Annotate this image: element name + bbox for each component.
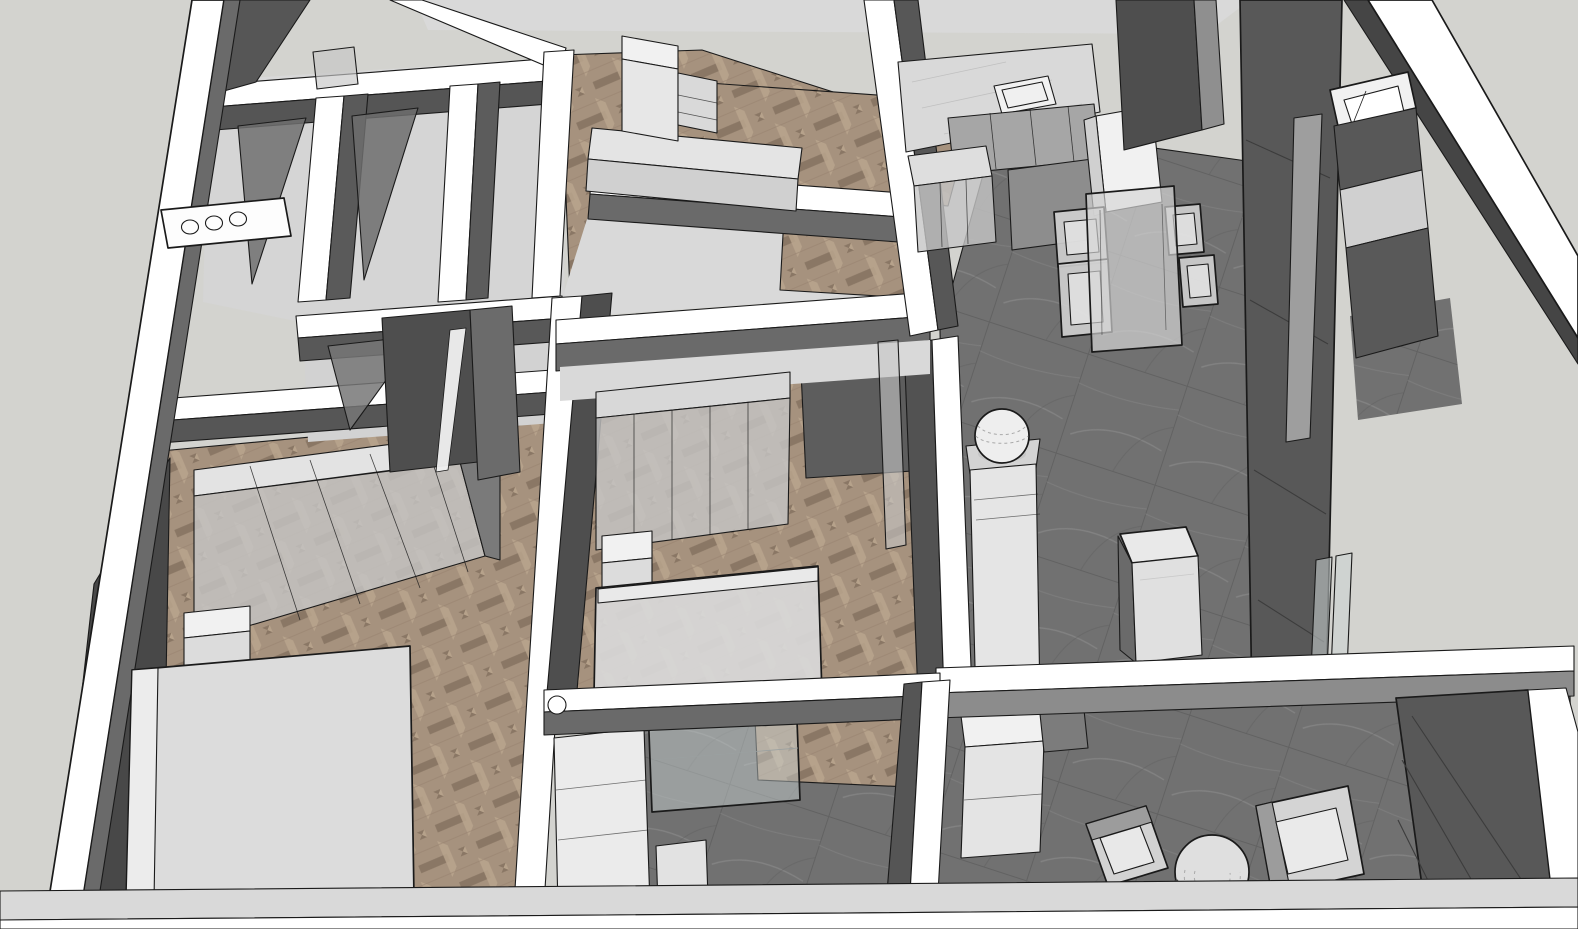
- dining-stool-frame: [1187, 264, 1211, 298]
- entry-cabinet-lower[interactable]: [1346, 228, 1438, 358]
- bedroom1-closet-marble: [470, 306, 520, 480]
- bedroom2-wardrobe-front[interactable]: [596, 398, 790, 550]
- hall-floor-marker: [548, 696, 566, 714]
- kitchen-glass-counter-front: [914, 176, 996, 252]
- bathroom-vanity[interactable]: [554, 728, 650, 908]
- bedroom1-bed[interactable]: [126, 646, 414, 903]
- storage-glass-box[interactable]: [313, 47, 358, 89]
- study-cabinet-front: [622, 59, 678, 141]
- kitchen-tall-cabinet[interactable]: [1116, 0, 1202, 150]
- balcony-shelf: [1040, 710, 1088, 752]
- island-cabinet-front: [1132, 556, 1202, 663]
- decor-sphere[interactable]: [975, 409, 1029, 463]
- model-viewport[interactable]: [0, 0, 1578, 929]
- study-shelf[interactable]: [678, 73, 717, 133]
- floorplan-3d-canvas[interactable]: [0, 0, 1578, 929]
- bedroom1-bed-headboard: [126, 668, 158, 903]
